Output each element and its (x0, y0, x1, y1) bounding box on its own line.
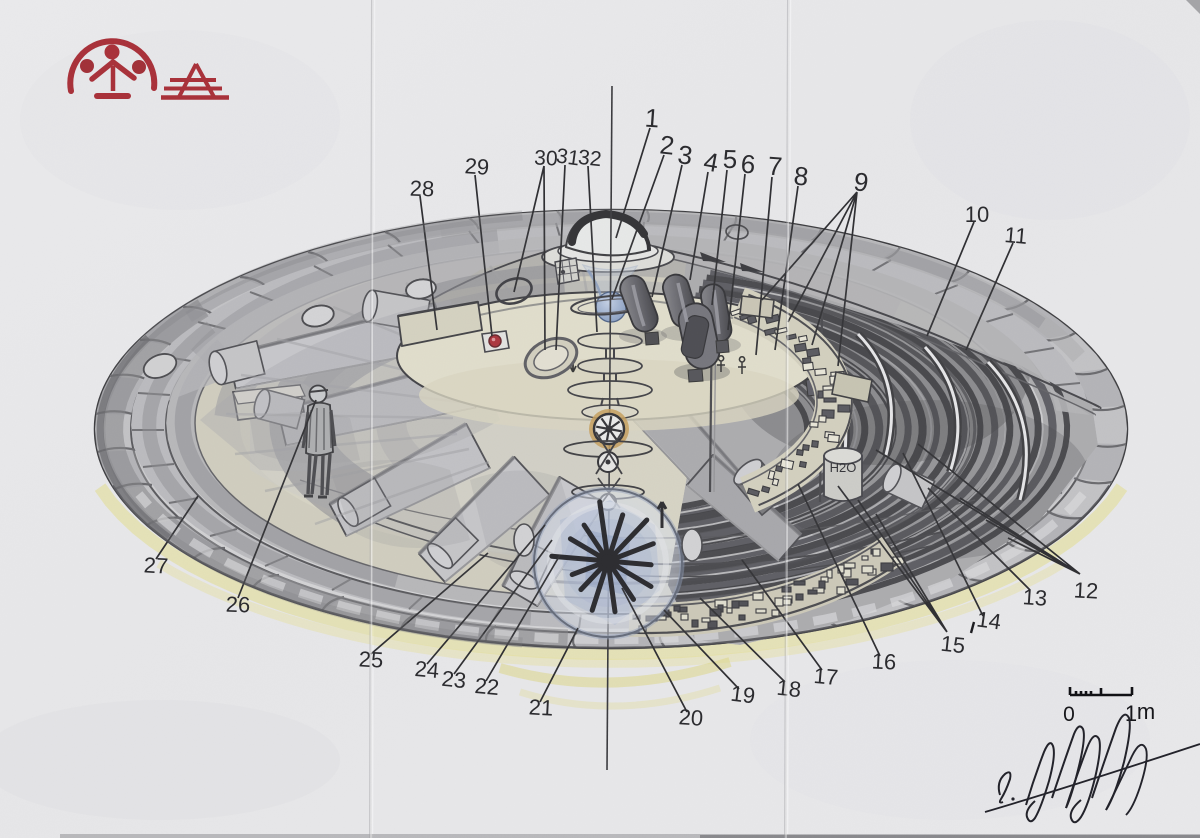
svg-text:0: 0 (1063, 703, 1075, 726)
svg-text:m: m (1137, 699, 1155, 724)
svg-text:1: 1 (1125, 701, 1137, 726)
